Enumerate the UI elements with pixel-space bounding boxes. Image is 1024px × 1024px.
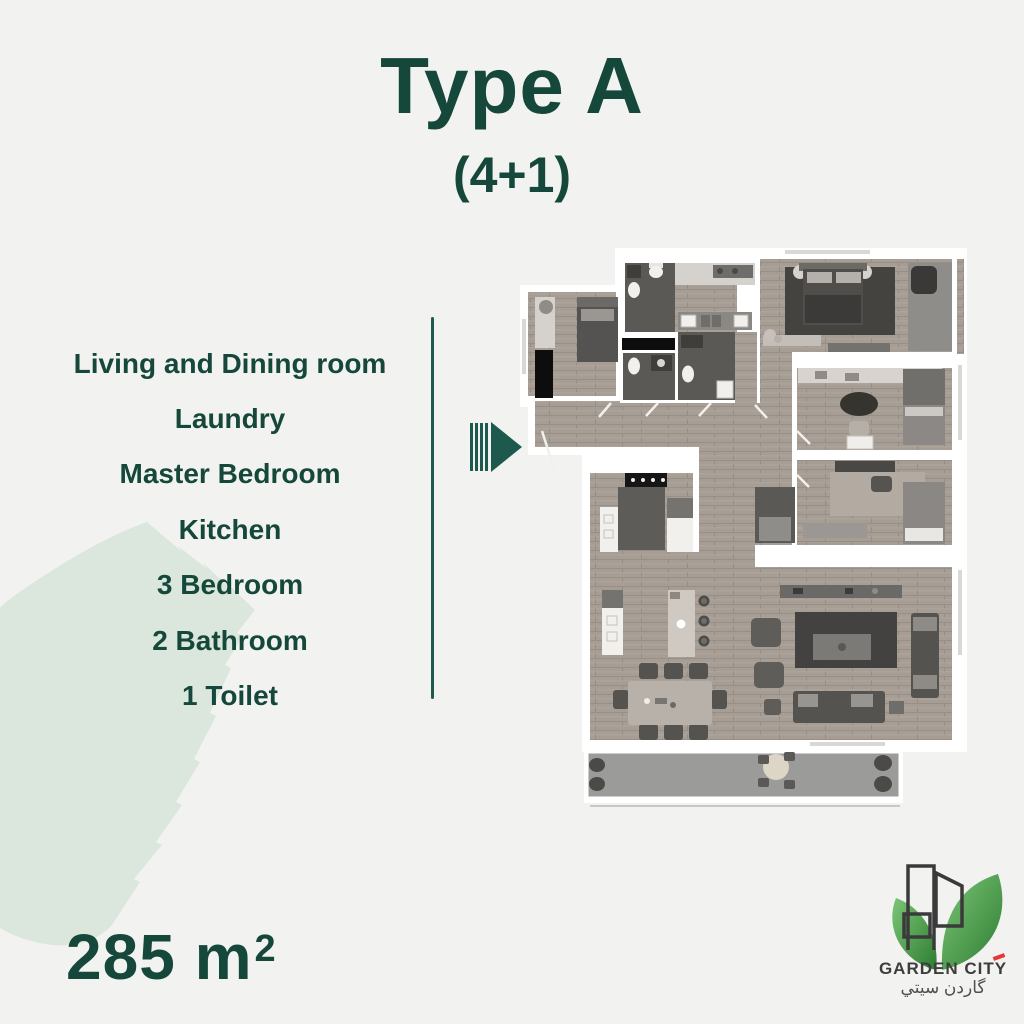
room-toilet bbox=[678, 332, 735, 400]
feature-kitchen: Kitchen bbox=[30, 502, 430, 557]
garden-city-logo: GARDEN CITY گاردن سيتي bbox=[858, 852, 1024, 1022]
feature-bedrooms: 3 Bedroom bbox=[30, 558, 430, 613]
logo-wordmark-arabic: گاردن سيتي bbox=[901, 977, 987, 998]
feature-laundry: Laundry bbox=[30, 391, 430, 446]
kitchenette-counter bbox=[678, 312, 752, 330]
area-label: 285 m2 bbox=[66, 920, 275, 994]
area-superscript: 2 bbox=[254, 928, 276, 970]
feature-master-bedroom: Master Bedroom bbox=[30, 447, 430, 502]
vertical-divider bbox=[431, 317, 434, 699]
feature-bathrooms: 2 Bathroom bbox=[30, 613, 430, 668]
closet-row bbox=[675, 263, 755, 285]
room-bathroom-2 bbox=[623, 353, 675, 400]
room-balcony bbox=[587, 752, 900, 807]
logo-wordmark: GARDEN CITY bbox=[879, 959, 1007, 978]
feature-toilet: 1 Toilet bbox=[30, 668, 430, 723]
floor-plan bbox=[515, 235, 970, 810]
page-title: Type A bbox=[0, 40, 1024, 132]
page-subtitle: (4+1) bbox=[0, 146, 1024, 204]
area-unit: m bbox=[195, 921, 253, 993]
room-bathroom-1 bbox=[625, 263, 675, 332]
room-shower-bathroom bbox=[755, 487, 795, 543]
room-walk-in-closet bbox=[908, 263, 952, 351]
area-value: 285 bbox=[66, 921, 176, 993]
poster-root: { "page": { "background": "#f2f3f1", "ac… bbox=[0, 0, 1024, 1024]
feature-living-dining: Living and Dining room bbox=[30, 336, 430, 391]
wardrobe-black bbox=[622, 338, 675, 350]
feature-list: Living and Dining room Laundry Master Be… bbox=[30, 336, 430, 724]
